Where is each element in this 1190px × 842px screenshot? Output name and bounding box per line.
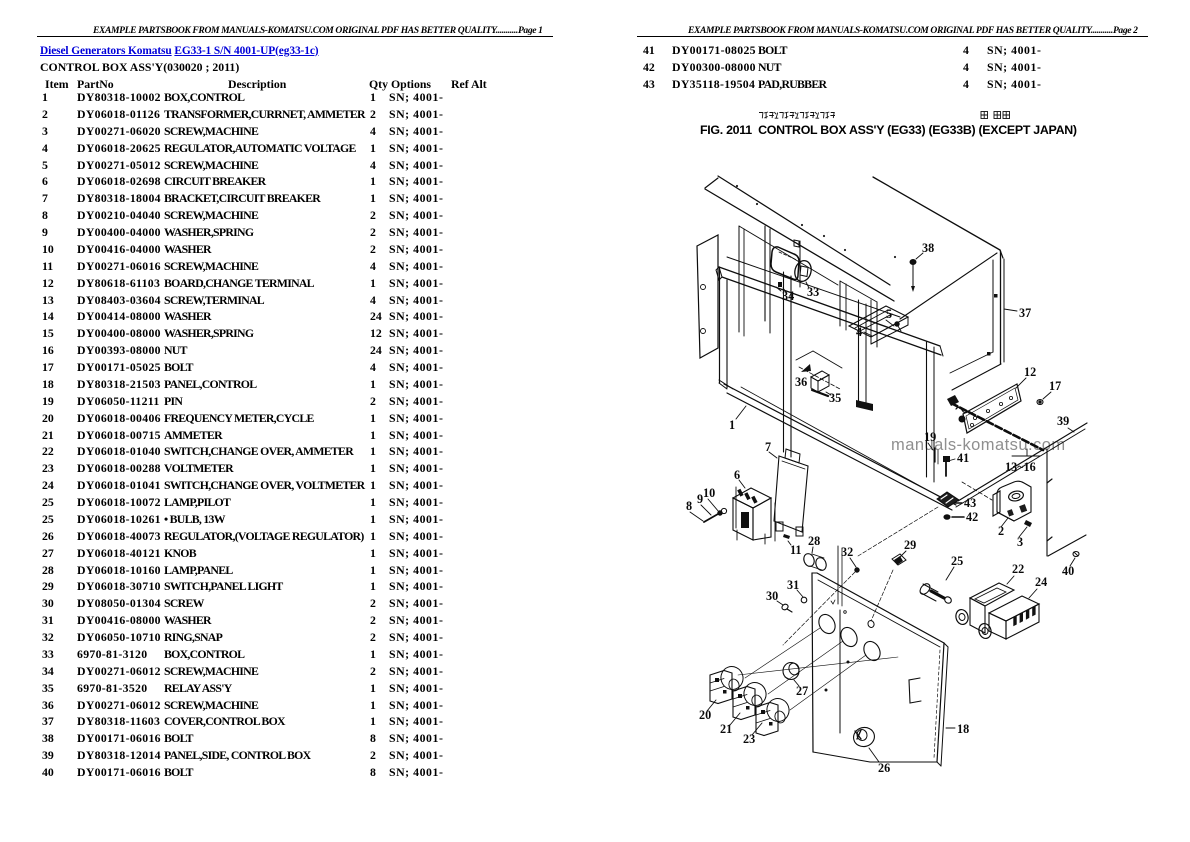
svg-text:25: 25 bbox=[951, 554, 963, 568]
svg-text:36: 36 bbox=[795, 375, 807, 389]
svg-text:32: 32 bbox=[841, 545, 853, 559]
svg-text:7: 7 bbox=[765, 440, 771, 454]
svg-text:20: 20 bbox=[699, 708, 711, 722]
svg-text:18: 18 bbox=[957, 722, 969, 736]
svg-text:38: 38 bbox=[922, 241, 934, 255]
svg-text:2: 2 bbox=[998, 524, 1004, 538]
svg-text:39: 39 bbox=[1057, 414, 1069, 428]
svg-text:1: 1 bbox=[729, 418, 735, 432]
svg-text:5: 5 bbox=[886, 307, 892, 321]
svg-text:22: 22 bbox=[1012, 562, 1024, 576]
svg-text:26: 26 bbox=[878, 761, 890, 775]
svg-text:3: 3 bbox=[1017, 535, 1023, 549]
svg-text:43: 43 bbox=[964, 496, 976, 510]
svg-text:23: 23 bbox=[743, 732, 755, 746]
svg-text:8: 8 bbox=[686, 499, 692, 513]
svg-text:19: 19 bbox=[924, 430, 936, 444]
svg-text:30: 30 bbox=[766, 589, 778, 603]
svg-text:10: 10 bbox=[703, 486, 715, 500]
svg-text:40: 40 bbox=[1062, 564, 1074, 578]
svg-text:28: 28 bbox=[808, 534, 820, 548]
svg-text:4: 4 bbox=[856, 325, 862, 339]
svg-text:11: 11 bbox=[790, 543, 802, 557]
svg-text:37: 37 bbox=[1019, 306, 1031, 320]
svg-text:41: 41 bbox=[957, 451, 969, 465]
svg-text:24: 24 bbox=[1035, 575, 1047, 589]
svg-text:27: 27 bbox=[796, 684, 808, 698]
svg-text:29: 29 bbox=[904, 538, 916, 552]
svg-text:35: 35 bbox=[829, 391, 841, 405]
svg-text:12: 12 bbox=[1024, 365, 1036, 379]
svg-text:17: 17 bbox=[1049, 379, 1061, 393]
svg-text:42: 42 bbox=[966, 510, 978, 524]
